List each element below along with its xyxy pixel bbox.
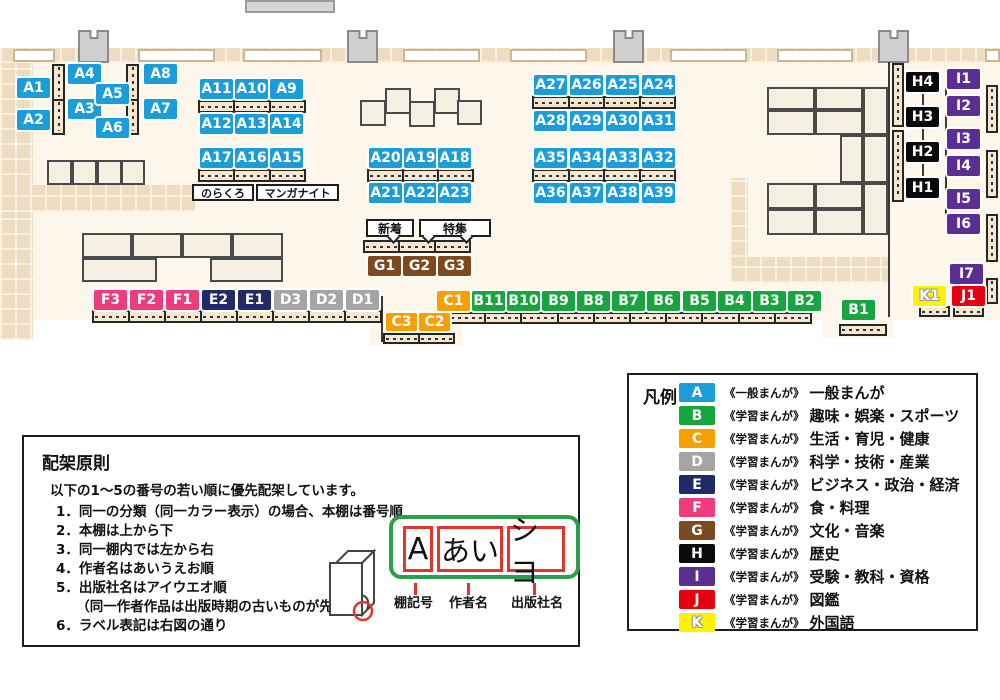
pillar: [878, 30, 909, 63]
display-table: [132, 233, 182, 258]
shelf-label-a9: A9: [270, 79, 303, 99]
shelf-segment: [955, 308, 982, 315]
legend-chip-i: I: [679, 567, 715, 586]
display-table: [232, 233, 283, 258]
floor-texture: [730, 257, 888, 283]
legend-series-label: 《学習まんが》: [724, 500, 805, 516]
principles-intro: 以下の1～5の番号の若い順に優先配架しています。: [50, 479, 364, 499]
pillar: [613, 30, 644, 63]
shelf-segment: [385, 335, 418, 342]
author-box: あい: [437, 526, 503, 572]
bookshelf: [198, 169, 306, 182]
shelf-label-f3: F3: [94, 290, 127, 310]
shelf-segment: [534, 98, 568, 107]
display-table: [97, 160, 122, 185]
shelf-label-a13: A13: [235, 114, 268, 134]
legend-chip-j: J: [679, 590, 715, 609]
bookshelf-vertical: [986, 150, 998, 198]
shelf-label-b9: B9: [542, 291, 575, 311]
shelf-segment: [603, 98, 639, 107]
display-table: [767, 110, 815, 135]
shelf-label-a19: A19: [404, 148, 437, 168]
shelf-segment: [233, 171, 268, 180]
shelf-label-a12: A12: [200, 114, 233, 134]
shelf-segment: [738, 314, 774, 322]
shelf-label-c3: C3: [386, 313, 417, 331]
shelf-segment: [894, 65, 902, 125]
shelf-label-h3: H3: [906, 107, 939, 127]
shelf-segment: [94, 312, 128, 321]
shelf-label-h4: H4: [906, 72, 939, 92]
caption-shelf-code: 棚記号: [394, 592, 433, 611]
legend-category-label: 受験・教科・資格: [810, 566, 930, 587]
shelf-label-b3: B3: [753, 291, 786, 311]
display-table: [360, 100, 386, 126]
shelf-label-a1: A1: [17, 78, 50, 98]
shelf-label-b10: B10: [507, 291, 540, 311]
structure-block: [245, 0, 335, 13]
legend-row: A《一般まんが》一般まんが: [679, 381, 960, 404]
shelf-segment: [418, 335, 453, 342]
window: [138, 49, 215, 62]
shelf-label-a33: A33: [606, 148, 639, 168]
shelf-segment: [603, 171, 639, 180]
bookshelf: [367, 169, 474, 182]
shelf-label-a4: A4: [68, 64, 101, 84]
display-table: [815, 110, 863, 135]
shelf-segment: [534, 171, 568, 180]
pillar: [78, 30, 109, 63]
shelf-label-a27: A27: [534, 75, 567, 95]
shelf-label-b1: B1: [842, 300, 875, 320]
shelf-label-b5: B5: [683, 291, 716, 311]
window: [510, 49, 587, 62]
legend-series-label: 《学習まんが》: [724, 592, 805, 608]
legend-series-label: 《学習まんが》: [724, 408, 805, 424]
shelf-label-g1: G1: [368, 256, 401, 276]
caption-author: 作者名: [449, 592, 488, 611]
shelf-segment: [344, 312, 380, 321]
pillar-notch: [624, 30, 633, 39]
shelf-label-i2: I2: [947, 96, 980, 116]
legend-chip-h: H: [679, 544, 715, 563]
shelf-label-a22: A22: [404, 183, 437, 203]
shelf-label-a37: A37: [570, 183, 603, 203]
bookshelf: [198, 100, 306, 113]
legend-series-label: 《学習まんが》: [724, 546, 805, 562]
shelf-label-d2: D2: [310, 290, 343, 310]
shelf-label-a36: A36: [534, 183, 567, 203]
display-table: [863, 183, 888, 235]
shelf-segment: [369, 171, 402, 180]
shelf-segment: [557, 314, 593, 322]
shelf-label-g2: G2: [403, 256, 436, 276]
shelf-segment: [128, 312, 164, 321]
shelf-segment: [402, 171, 437, 180]
shelf-label-a16: A16: [235, 148, 268, 168]
shelf-segment: [200, 102, 233, 111]
shelf-segment: [236, 312, 272, 321]
publisher-box: シヨ: [507, 526, 565, 572]
legend-rows: A《一般まんが》一般まんがB《学習まんが》趣味・娯楽・スポーツC《学習まんが》生…: [679, 381, 960, 634]
shelf-label-f2: F2: [130, 290, 163, 310]
display-table: [815, 183, 863, 209]
bookshelf: [363, 240, 471, 253]
principles-item: 2．本棚は上から下: [56, 522, 403, 541]
shelf-label-i7: I7: [950, 264, 983, 284]
pillar-notch: [89, 30, 98, 39]
shelf-segment: [128, 99, 137, 134]
bookshelf-vertical: [986, 278, 998, 304]
shelf-segment: [484, 314, 520, 322]
shelf-segment: [200, 171, 233, 180]
shelf-label-a14: A14: [270, 114, 303, 134]
shelf-label-a21: A21: [369, 183, 402, 203]
shelf-segment: [437, 171, 472, 180]
legend-category-label: 生活・育児・健康: [810, 428, 930, 449]
shelf-label-a20: A20: [369, 148, 402, 168]
legend-chip-a: A: [679, 383, 715, 402]
shelf-segment: [568, 171, 604, 180]
shelf-label-a5: A5: [96, 84, 129, 104]
pillar: [347, 30, 378, 63]
shelf-label-k1: K1: [913, 286, 946, 306]
shelf-label-g3: G3: [438, 256, 471, 276]
legend-chip-c: C: [679, 429, 715, 448]
shelf-label-a11: A11: [200, 79, 233, 99]
shelf-label-a39: A39: [642, 183, 675, 203]
shelf-segment: [54, 66, 63, 99]
bookshelf-vertical: [52, 64, 65, 135]
shelf-label-a25: A25: [606, 75, 639, 95]
display-table: [767, 87, 815, 110]
shelf-label-i4: I4: [947, 156, 980, 176]
legend-row: I《学習まんが》受験・教科・資格: [679, 565, 960, 588]
shelf-label-a15: A15: [270, 148, 303, 168]
legend-category-label: ビジネス・政治・経済: [810, 474, 960, 495]
window: [777, 49, 853, 62]
shelf-segment: [988, 216, 996, 260]
shelf-label-b4: B4: [718, 291, 751, 311]
legend-chip-d: D: [679, 452, 715, 471]
bookshelf: [532, 96, 676, 109]
shelf-label-a29: A29: [570, 111, 603, 131]
display-table: [457, 100, 482, 125]
display-table: [863, 87, 888, 135]
legend-chip-g: G: [679, 521, 715, 540]
shelf-label-b7: B7: [612, 291, 645, 311]
shelf-segment: [272, 312, 308, 321]
shelf-label-a32: A32: [642, 148, 675, 168]
shelf-segment: [54, 99, 63, 134]
shelf-label-a17: A17: [200, 148, 233, 168]
shelving-principles-box: 配架原則 以下の1～5の番号の若い順に優先配架しています。 1．同一の分類（同一…: [22, 435, 580, 647]
legend-chip-e: E: [679, 475, 715, 494]
display-table: [815, 209, 863, 235]
area-name-label: のらくろ: [192, 184, 254, 201]
shelf-label-b11: B11: [472, 291, 505, 311]
shelf-label-b8: B8: [577, 291, 610, 311]
window: [13, 49, 55, 62]
shelf-segment: [269, 171, 304, 180]
legend-series-label: 《学習まんが》: [724, 431, 805, 447]
display-table: [121, 160, 145, 185]
bookshelf: [383, 333, 455, 344]
display-table: [767, 183, 815, 209]
area-name-label: マンガナイト: [256, 184, 339, 201]
bookshelf: [953, 306, 984, 317]
shelf-label-a24: A24: [642, 75, 675, 95]
shelf-segment: [639, 98, 675, 107]
pillar-notch: [889, 30, 898, 39]
shelf-segment: [701, 314, 737, 322]
bookshelf: [919, 306, 950, 317]
shelf-segment: [774, 314, 810, 322]
bookshelf: [532, 169, 676, 182]
shelf-label-a31: A31: [642, 111, 675, 131]
shelf-label-a8: A8: [144, 64, 177, 84]
floor-map-page: A1A2A4A3A5A6A8A7A11A10A9A12A13A14A17A16A…: [0, 0, 1000, 700]
shelf-label-a18: A18: [438, 148, 471, 168]
display-table: [82, 258, 157, 282]
shelf-label-b6: B6: [647, 291, 680, 311]
shelf-segment: [988, 152, 996, 196]
caption-publisher: 出版社名: [511, 592, 563, 611]
shelf-segment: [520, 314, 556, 322]
legend-chip-b: B: [679, 406, 715, 425]
legend-row: G《学習まんが》文化・音楽: [679, 519, 960, 542]
legend-row: C《学習まんが》生活・育児・健康: [679, 427, 960, 450]
display-table: [82, 233, 132, 258]
shelf-label-a7: A7: [144, 99, 177, 119]
legend-series-label: 《学習まんが》: [724, 615, 805, 631]
shelf-segment: [894, 132, 902, 200]
bookshelf-vertical: [892, 63, 904, 127]
bookshelf-vertical: [892, 130, 904, 202]
shelf-label-a23: A23: [438, 183, 471, 203]
display-table: [767, 209, 815, 235]
display-table: [72, 160, 97, 185]
shelf-segment: [269, 102, 304, 111]
display-table: [210, 258, 283, 282]
shelf-label-h2: H2: [906, 142, 939, 162]
shelf-label-i6: I6: [947, 214, 980, 234]
shelf-code-box: A: [403, 526, 433, 572]
legend-category-label: 歴史: [810, 543, 840, 564]
legend-category-label: 文化・音楽: [810, 520, 885, 541]
display-table: [182, 233, 232, 258]
bookshelf: [839, 324, 887, 336]
display-table: [47, 160, 72, 185]
principles-item: 1．同一の分類（同一カラー表示）の場合、本棚は番号順: [56, 503, 403, 522]
legend-category-label: 趣味・娯楽・スポーツ: [810, 405, 960, 426]
shelf-label-c2: C2: [419, 313, 450, 331]
shelf-segment: [450, 314, 484, 322]
shelf-label-i1: I1: [947, 69, 980, 89]
legend-chip-f: F: [679, 498, 715, 517]
shelf-segment: [665, 314, 701, 322]
shelf-label-b2: B2: [788, 291, 821, 311]
shelf-segment: [921, 308, 948, 315]
legend-row: H《学習まんが》歴史: [679, 542, 960, 565]
legend-chip-k: K: [679, 613, 715, 632]
legend-category-label: 一般まんが: [810, 382, 885, 403]
shelf-label-h1: H1: [906, 178, 939, 198]
window: [403, 49, 480, 62]
shelf-label-a35: A35: [534, 148, 567, 168]
shelf-segment: [308, 312, 344, 321]
shelf-segment: [988, 280, 996, 302]
bookshelf-vertical: [986, 85, 998, 133]
shelf-segment: [639, 171, 675, 180]
shelf-segment: [568, 98, 604, 107]
display-table: [385, 88, 411, 114]
legend-title: 凡例: [643, 383, 677, 408]
legend-category-label: 食・料理: [810, 497, 870, 518]
display-table: [815, 87, 863, 110]
display-table: [409, 101, 435, 127]
legend-row: F《学習まんが》食・料理: [679, 496, 960, 519]
window: [670, 49, 747, 62]
shelf-segment: [629, 314, 665, 322]
legend-row: B《学習まんが》趣味・娯楽・スポーツ: [679, 404, 960, 427]
legend-category-label: 科学・技術・産業: [810, 451, 930, 472]
legend-series-label: 《学習まんが》: [724, 569, 805, 585]
legend-row: K《学習まんが》外国語: [679, 611, 960, 634]
legend-series-label: 《一般まんが》: [724, 385, 805, 401]
principles-title: 配架原則: [42, 449, 110, 474]
bookshelf-vertical: [986, 214, 998, 262]
label-frame: A あい シヨ: [389, 515, 580, 579]
shelf-label-a10: A10: [235, 79, 268, 99]
shelf-label-j1: J1: [952, 286, 985, 306]
book-icon: [324, 545, 380, 629]
shelf-segment: [200, 312, 236, 321]
shelf-segment: [233, 102, 268, 111]
shelf-label-d3: D3: [274, 290, 307, 310]
shelf-label-d1: D1: [346, 290, 379, 310]
shelf-segment: [128, 66, 137, 99]
legend-row: E《学習まんが》ビジネス・政治・経済: [679, 473, 960, 496]
legend-series-label: 《学習まんが》: [724, 454, 805, 470]
bookshelf: [92, 310, 382, 323]
legend-category-label: 外国語: [810, 612, 855, 633]
floor-texture: [0, 185, 195, 212]
legend-row: J《学習まんが》図鑑: [679, 588, 960, 611]
shelf-label-a30: A30: [606, 111, 639, 131]
legend-box: 凡例 A《一般まんが》一般まんがB《学習まんが》趣味・娯楽・スポーツC《学習まん…: [627, 373, 978, 631]
wall-line: [888, 62, 890, 317]
shelf-label-f1: F1: [166, 290, 199, 310]
shelf-label-e2: E2: [202, 290, 235, 310]
shelf-segment: [164, 312, 200, 321]
shelf-label-a34: A34: [570, 148, 603, 168]
pillar-notch: [358, 30, 367, 39]
shelf-segment: [434, 242, 469, 251]
shelf-label-a2: A2: [17, 110, 50, 130]
shelf-label-a38: A38: [606, 183, 639, 203]
shelf-label-a28: A28: [534, 111, 567, 131]
shelf-segment: [593, 314, 629, 322]
shelf-segment: [988, 87, 996, 131]
floor-texture: [730, 178, 748, 257]
shelf-label-i5: I5: [947, 189, 980, 209]
shelf-label-i3: I3: [947, 129, 980, 149]
shelf-label-c1: C1: [437, 291, 470, 311]
display-table: [840, 135, 863, 183]
shelf-label-a26: A26: [570, 75, 603, 95]
shelf-label-e1: E1: [238, 290, 271, 310]
legend-row: D《学習まんが》科学・技術・産業: [679, 450, 960, 473]
bookshelf: [448, 312, 812, 324]
legend-category-label: 図鑑: [810, 589, 840, 610]
legend-series-label: 《学習まんが》: [724, 523, 805, 539]
shelf-segment: [841, 326, 885, 334]
display-table: [863, 135, 888, 183]
window: [243, 49, 322, 62]
window: [985, 49, 1000, 62]
legend-series-label: 《学習まんが》: [724, 477, 805, 493]
shelf-label-a6: A6: [96, 118, 129, 138]
